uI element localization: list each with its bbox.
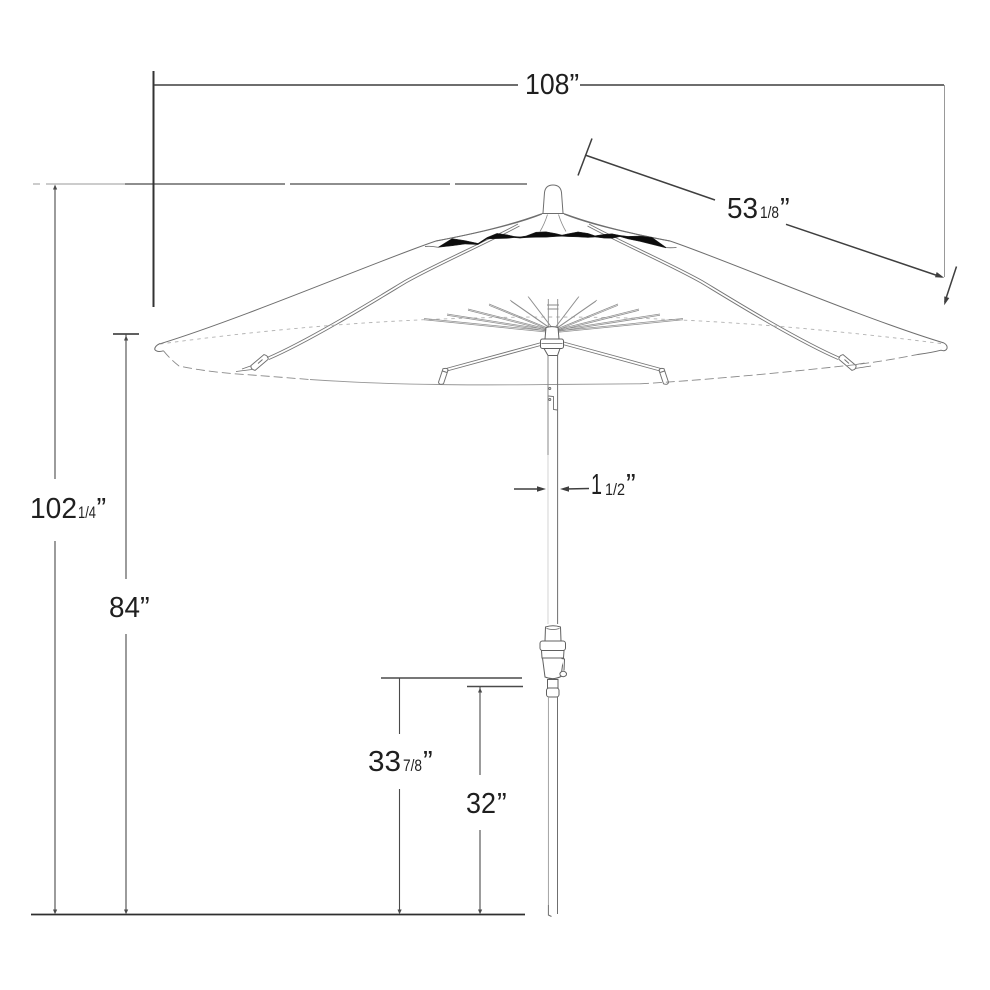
- svg-text:1/2: 1/2: [605, 480, 625, 499]
- svg-text:1: 1: [591, 469, 602, 501]
- svg-text:108: 108: [525, 69, 570, 101]
- svg-text:53: 53: [727, 193, 758, 225]
- svg-text:102: 102: [30, 493, 77, 525]
- svg-text:”: ”: [570, 69, 580, 101]
- svg-text:”: ”: [497, 788, 507, 820]
- svg-text:”: ”: [780, 193, 790, 225]
- svg-text:”: ”: [140, 592, 150, 624]
- svg-text:32: 32: [466, 788, 496, 820]
- svg-text:1/4: 1/4: [78, 503, 96, 522]
- svg-text:”: ”: [97, 493, 107, 525]
- svg-text:84: 84: [109, 592, 140, 624]
- svg-text:”: ”: [626, 469, 636, 501]
- svg-text:”: ”: [423, 746, 433, 778]
- svg-text:33: 33: [368, 746, 401, 778]
- svg-text:1/8: 1/8: [760, 203, 779, 222]
- svg-text:7/8: 7/8: [403, 756, 422, 775]
